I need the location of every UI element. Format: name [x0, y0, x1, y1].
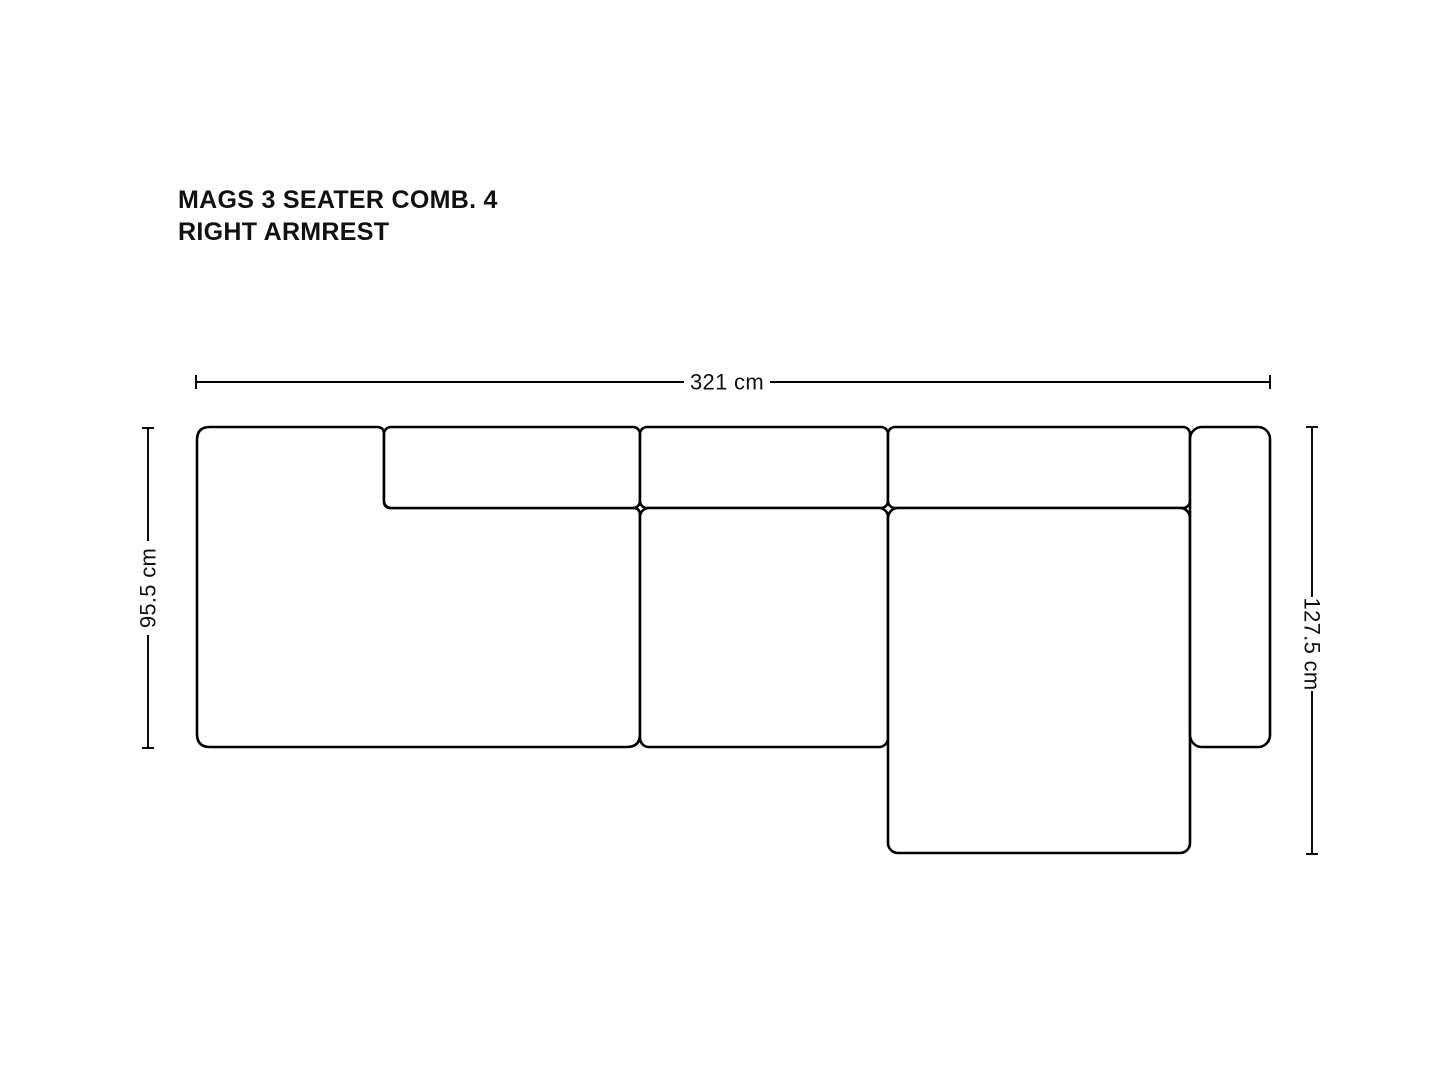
middle-seat-cushion [640, 508, 888, 747]
width-dimension: 321 cm [196, 370, 1270, 395]
sofa-outline [197, 427, 1270, 853]
right-armrest [1190, 427, 1270, 747]
right-depth-label: 127.5 cm [1299, 598, 1324, 691]
back-cushion-2 [640, 427, 888, 508]
sofa-dimension-page: MAGS 3 SEATER COMB. 4 RIGHT ARMREST [0, 0, 1445, 1087]
right-depth-dimension: 127.5 cm [1299, 427, 1324, 854]
chaise-longue-seat [888, 508, 1190, 853]
width-dimension-label: 321 cm [690, 370, 764, 395]
sofa-diagram: 321 cm 95.5 cm 127.5 cm [0, 0, 1445, 1087]
left-depth-dimension: 95.5 cm [136, 428, 161, 748]
left-depth-label: 95.5 cm [136, 548, 161, 628]
back-cushion-3 [888, 427, 1190, 508]
back-cushion-1 [384, 427, 640, 508]
